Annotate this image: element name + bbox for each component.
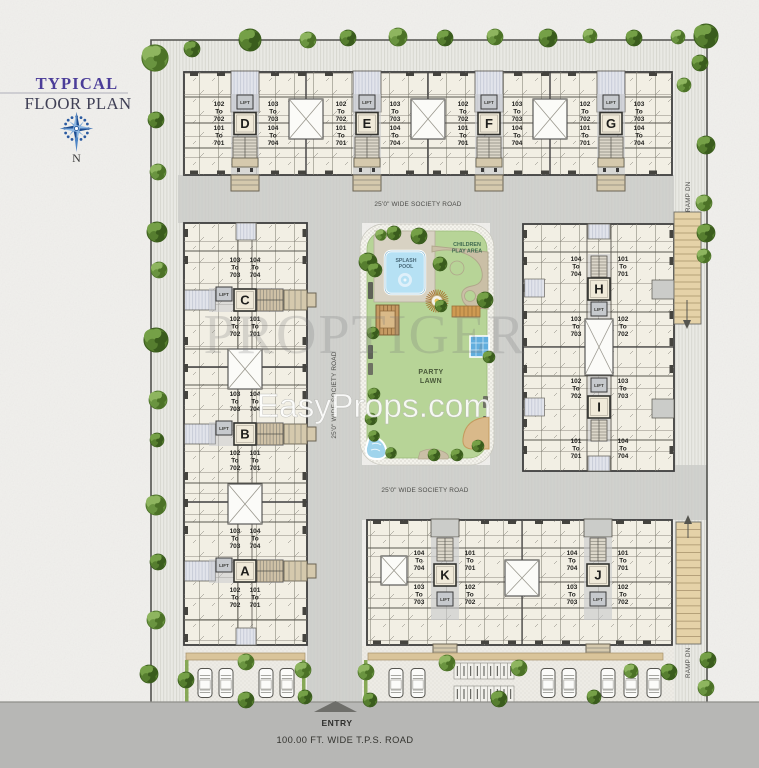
svg-text:LIFT: LIFT — [219, 292, 229, 297]
svg-text:J: J — [594, 568, 601, 583]
svg-text:LIFT: LIFT — [362, 100, 372, 105]
svg-text:LIFT: LIFT — [484, 100, 494, 105]
svg-text:E: E — [363, 116, 372, 131]
svg-text:G: G — [606, 116, 616, 131]
svg-text:EasyProps.com: EasyProps.com — [257, 388, 492, 425]
svg-text:I: I — [597, 400, 601, 415]
svg-text:PROPTIGER: PROPTIGER — [204, 304, 527, 366]
svg-text:100.00 FT. WIDE T.P.S. ROAD: 100.00 FT. WIDE T.P.S. ROAD — [276, 735, 413, 745]
svg-text:LIFT: LIFT — [594, 383, 604, 388]
svg-text:A: A — [240, 564, 250, 579]
svg-text:LIFT: LIFT — [240, 100, 250, 105]
svg-text:FLOOR PLAN: FLOOR PLAN — [24, 94, 131, 113]
svg-text:LIFT: LIFT — [219, 426, 229, 431]
svg-text:TYPICAL: TYPICAL — [36, 74, 119, 93]
svg-text:D: D — [240, 116, 249, 131]
svg-text:RAMP DN: RAMP DN — [685, 647, 692, 678]
svg-text:B: B — [240, 427, 249, 442]
svg-text:LIFT: LIFT — [606, 100, 616, 105]
svg-text:25'0" WIDE SOCIETY ROAD: 25'0" WIDE SOCIETY ROAD — [374, 201, 461, 208]
svg-text:LIFT: LIFT — [219, 563, 229, 568]
svg-text:CHILDRENPLAY AREA: CHILDRENPLAY AREA — [452, 242, 482, 255]
svg-text:LIFT: LIFT — [594, 307, 604, 312]
svg-text:LIFT: LIFT — [593, 597, 603, 602]
svg-text:RAMP DN: RAMP DN — [685, 181, 692, 212]
svg-text:25'0" WIDE SOCIETY ROAD: 25'0" WIDE SOCIETY ROAD — [381, 487, 468, 494]
svg-text:LIFT: LIFT — [440, 597, 450, 602]
svg-text:F: F — [485, 116, 493, 131]
svg-text:N: N — [72, 151, 81, 165]
svg-text:K: K — [440, 568, 450, 583]
svg-text:H: H — [594, 282, 603, 297]
svg-text:ENTRY: ENTRY — [322, 718, 353, 728]
